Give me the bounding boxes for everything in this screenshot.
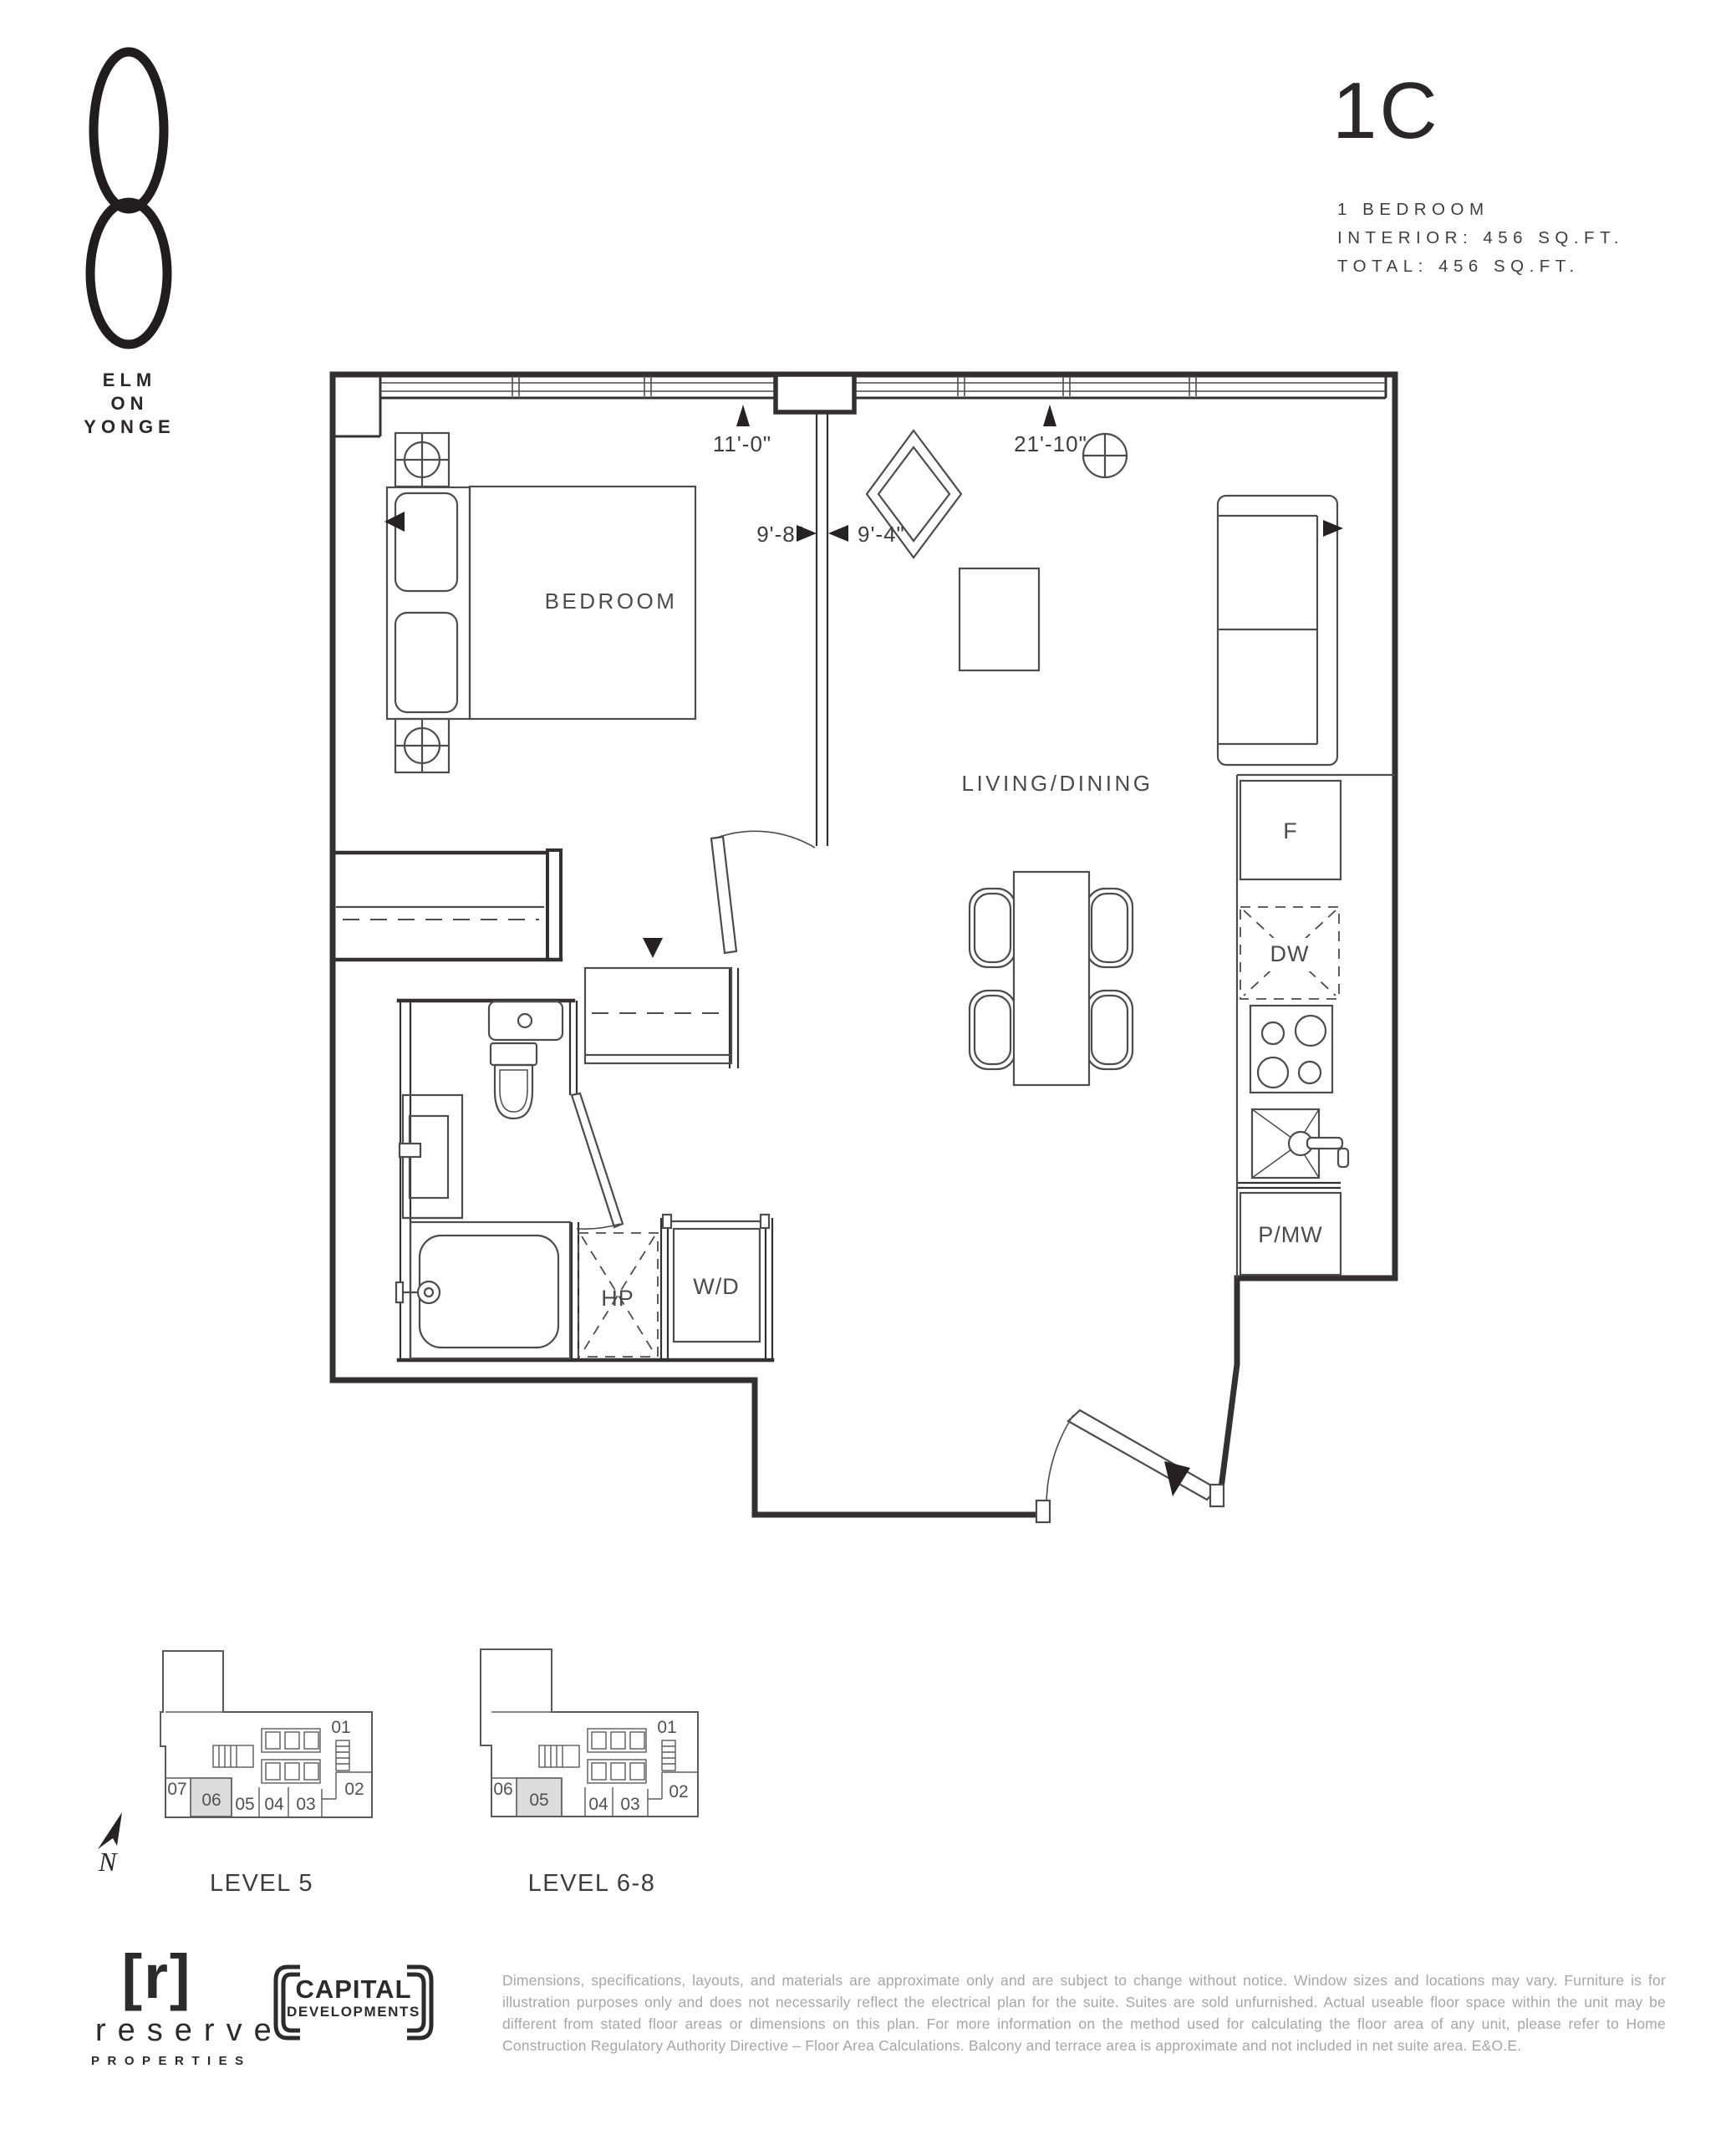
entry-door bbox=[1036, 1410, 1224, 1522]
floorplan-drawing: 11'-0" 21'-10" 9'-8" 9'-4" BEDROOM LIVIN… bbox=[0, 0, 1736, 2140]
bathroom-door-leaf bbox=[572, 1093, 623, 1227]
vanity bbox=[489, 1001, 563, 1040]
stair-icon bbox=[662, 1740, 675, 1771]
kitchen bbox=[1237, 775, 1395, 1278]
dining-table bbox=[1014, 872, 1089, 1085]
coffee-table bbox=[960, 568, 1039, 670]
north-label: N bbox=[98, 1847, 118, 1877]
living-furniture bbox=[867, 431, 1337, 1085]
arrow-down-icon bbox=[643, 938, 663, 958]
kp5-unit-02: 02 bbox=[344, 1780, 364, 1799]
closet-wall-stub bbox=[547, 850, 561, 960]
living-dining-label: LIVING/DINING bbox=[962, 771, 1153, 796]
kp5-unit-03: 03 bbox=[296, 1795, 315, 1814]
dim-living-width: 21'-10" bbox=[1014, 431, 1087, 456]
shower-control bbox=[400, 1144, 420, 1157]
toilet-tank bbox=[491, 1043, 537, 1065]
kp5-unit-01: 01 bbox=[331, 1718, 350, 1737]
heat-pump-label: HP bbox=[601, 1286, 634, 1311]
fridge-label: F bbox=[1283, 818, 1298, 843]
interior-walls bbox=[333, 412, 1341, 1360]
floorplan-page: ELM ON YONGE 1C 1 BEDROOM INTERIOR: 456 … bbox=[0, 0, 1736, 2140]
dishwasher-label: DW bbox=[1270, 941, 1310, 966]
burner-icon bbox=[1296, 1016, 1326, 1046]
kp5-unit-04: 04 bbox=[264, 1795, 284, 1814]
bedroom-door bbox=[711, 831, 815, 953]
north-needle-icon bbox=[98, 1812, 122, 1849]
kp68-unit-04: 04 bbox=[588, 1795, 608, 1814]
capital-line1: CAPITAL bbox=[295, 1974, 411, 2004]
pillow bbox=[395, 613, 457, 712]
capital-line2: DEVELOPMENTS bbox=[287, 2004, 420, 2020]
entry-door-leaf bbox=[1068, 1410, 1217, 1500]
arrow-right-icon bbox=[1323, 520, 1343, 537]
north-arrow: N bbox=[98, 1812, 122, 1877]
dim-living-depth: 9'-4" bbox=[858, 522, 905, 547]
dim-arrow-left-icon bbox=[828, 525, 848, 542]
reserve-properties-logo: [r] reserve PROPERTIES bbox=[84, 1946, 230, 2068]
pantry-microwave-label: P/MW bbox=[1258, 1222, 1323, 1247]
tub-faucet-icon bbox=[418, 1281, 440, 1303]
reserve-name: reserve bbox=[84, 2013, 230, 2049]
sink-basin-icon bbox=[518, 1014, 532, 1027]
kp68-unit-06: 06 bbox=[493, 1780, 512, 1799]
keyplan-level5-title: LEVEL 5 bbox=[210, 1870, 313, 1897]
burner-icon bbox=[1299, 1062, 1321, 1083]
door-leaf bbox=[711, 837, 736, 953]
dim-bedroom-width: 11'-0" bbox=[713, 431, 771, 456]
pillow bbox=[395, 493, 457, 591]
tub-spout bbox=[396, 1282, 403, 1302]
dining-set bbox=[970, 872, 1133, 1085]
kp5-unit-05: 05 bbox=[235, 1795, 254, 1814]
kp68-unit-05: 05 bbox=[529, 1791, 548, 1810]
reserve-mark: [r] bbox=[84, 1946, 230, 2008]
burner-icon bbox=[1258, 1057, 1288, 1088]
washer-dryer-label: W/D bbox=[693, 1274, 739, 1299]
dim-arrow-right-icon bbox=[797, 525, 817, 542]
kp68-unit-01: 01 bbox=[657, 1718, 676, 1737]
dim-arrow-up-icon bbox=[1043, 405, 1056, 426]
disclaimer-text: Dimensions, specifications, layouts, and… bbox=[502, 1969, 1666, 2056]
keyplan-level6-8-title: LEVEL 6-8 bbox=[528, 1870, 656, 1897]
plan-annotations: 11'-0" 21'-10" 9'-8" 9'-4" BEDROOM LIVIN… bbox=[384, 405, 1343, 1311]
capital-developments-logo: CAPITAL DEVELOPMENTS bbox=[270, 1963, 437, 2046]
bedroom-label: BEDROOM bbox=[545, 588, 678, 614]
kp5-unit-06: 06 bbox=[201, 1791, 221, 1810]
kp5-unit-07: 07 bbox=[167, 1780, 186, 1799]
window-band bbox=[333, 374, 1386, 436]
keyplan-level6-8: 01 02 03 04 05 06 LEVEL 6-8 bbox=[481, 1649, 698, 1897]
kp68-unit-02: 02 bbox=[669, 1782, 688, 1801]
burner-icon bbox=[1262, 1022, 1284, 1044]
kp68-unit-03: 03 bbox=[620, 1795, 639, 1814]
reserve-tagline: PROPERTIES bbox=[84, 2054, 230, 2068]
keyplan-level5: 01 02 03 04 05 06 07 LEVEL 5 bbox=[160, 1651, 372, 1897]
window-wall-stub bbox=[776, 374, 854, 412]
stair-icon bbox=[336, 1740, 349, 1771]
entry-closet bbox=[585, 968, 731, 1063]
dim-arrow-up-icon bbox=[736, 405, 750, 426]
